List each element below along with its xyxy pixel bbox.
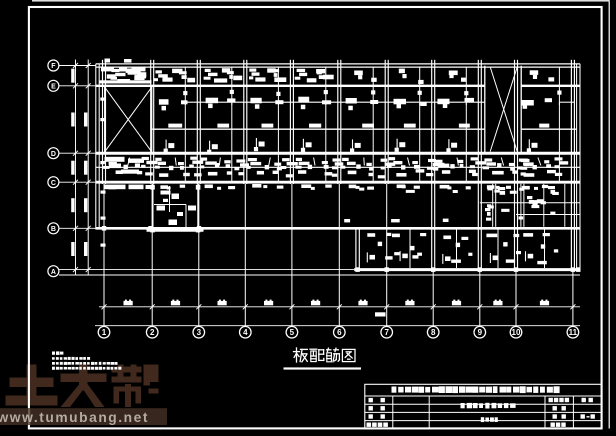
svg-text:C: C	[51, 180, 56, 187]
svg-text:F: F	[51, 63, 56, 70]
svg-text:4: 4	[243, 328, 248, 337]
svg-text:5: 5	[290, 328, 295, 337]
svg-text:B: B	[51, 226, 56, 233]
svg-text:3: 3	[197, 328, 202, 337]
svg-text:1: 1	[102, 328, 107, 337]
svg-text:10: 10	[512, 328, 521, 337]
svg-text:www.tumubang.net: www.tumubang.net	[0, 410, 149, 425]
svg-text:11: 11	[569, 328, 578, 337]
svg-text:D: D	[51, 151, 56, 158]
svg-text:7: 7	[384, 328, 389, 337]
svg-text:A: A	[51, 269, 56, 276]
svg-text:E: E	[51, 83, 56, 90]
svg-text:9: 9	[478, 328, 483, 337]
svg-text:6: 6	[337, 328, 342, 337]
svg-text:8: 8	[431, 328, 436, 337]
svg-text:2: 2	[150, 328, 155, 337]
